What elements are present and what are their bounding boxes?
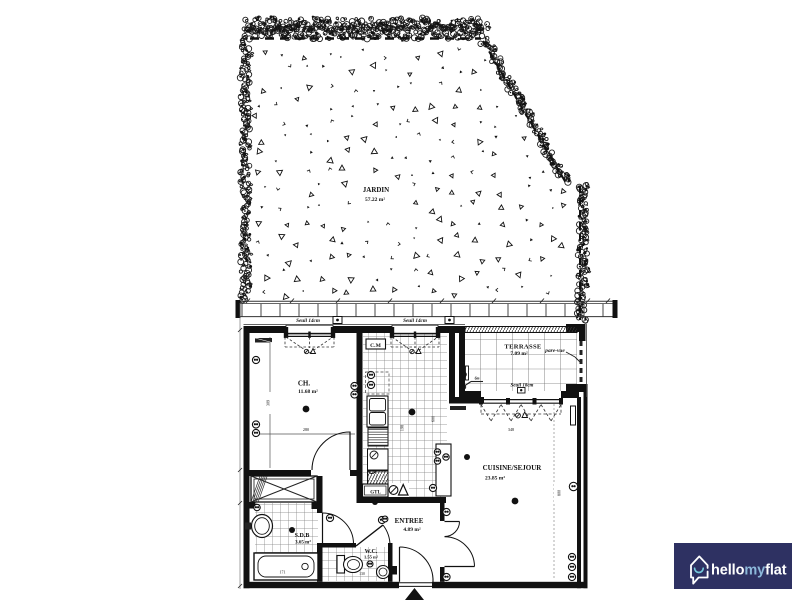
svg-text:600: 600	[431, 416, 436, 422]
svg-text:C.M: C.M	[370, 343, 381, 349]
svg-text:171: 171	[280, 570, 286, 575]
svg-text:309: 309	[266, 400, 271, 406]
svg-text:1.55 m²: 1.55 m²	[364, 555, 379, 560]
svg-text:3.65 m²: 3.65 m²	[295, 540, 311, 546]
svg-text:130: 130	[359, 572, 365, 576]
svg-text:CUISINE/SEJOUR: CUISINE/SEJOUR	[483, 464, 543, 472]
svg-text:7.09 m²: 7.09 m²	[510, 351, 528, 357]
svg-text:CH.: CH.	[298, 380, 311, 388]
svg-text:6m: 6m	[475, 377, 480, 381]
svg-text:hellomyflat: hellomyflat	[711, 563, 787, 579]
svg-text:198: 198	[400, 425, 405, 431]
svg-text:JARDIN: JARDIN	[363, 186, 389, 194]
svg-text:4.89 m²: 4.89 m²	[403, 527, 421, 533]
svg-text:57.22 m²: 57.22 m²	[365, 197, 385, 203]
svg-text:ENTREE: ENTREE	[395, 517, 424, 525]
svg-text:23.85 m²: 23.85 m²	[485, 476, 505, 482]
svg-text:11.68 m²: 11.68 m²	[298, 389, 318, 395]
svg-text:Seuil 14cm: Seuil 14cm	[403, 318, 427, 324]
svg-text:TERRASSE: TERRASSE	[504, 344, 542, 351]
svg-text:pare-vue: pare-vue	[544, 348, 565, 354]
svg-text:GTL: GTL	[370, 491, 381, 496]
svg-text:280: 280	[303, 427, 309, 432]
svg-text:S.D.B: S.D.B	[295, 533, 310, 539]
svg-text:800: 800	[557, 490, 562, 496]
svg-text:348: 348	[508, 427, 514, 432]
svg-text:Seuil 14cm: Seuil 14cm	[296, 318, 320, 324]
